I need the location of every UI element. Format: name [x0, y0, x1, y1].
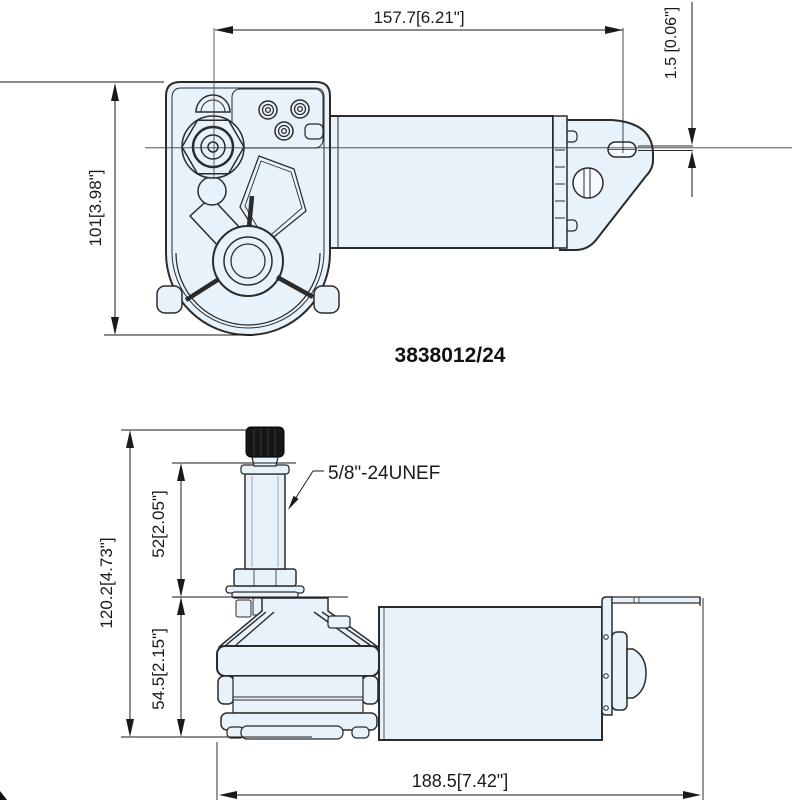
dim-shaft-height-label: 52[2.05"] [149, 490, 168, 557]
park-switch-block [236, 600, 251, 617]
thread-callout: 5/8"-24UNEF [288, 463, 440, 510]
shaft-hex-nut [234, 569, 296, 586]
boss-bottom-bump [198, 177, 226, 205]
gearbox-band [217, 646, 379, 676]
dome-side-block [328, 616, 350, 628]
dim-total-height-label: 120.2[4.73"] [97, 537, 116, 628]
dim-body-height: 54.5[2.15"] [149, 597, 185, 737]
dim-width-label: 157.7[6.21"] [373, 8, 464, 27]
motor-can-side [379, 607, 602, 740]
dim-plate-thickness: 1.5 [0.06"] [663, 2, 696, 197]
drive-shaft-assembly [226, 427, 304, 598]
gearbox-ear-right [362, 676, 378, 704]
thread-label: 5/8"-24UNEF [328, 463, 440, 484]
side-view: 5/8"-24UNEF 120.2[4.73"] 52[2.05"] 54.5[… [97, 427, 703, 800]
dim-plate-thickness-label: 1.5 [0.06"] [663, 7, 680, 79]
gearbox-mid-body [233, 676, 363, 713]
bearing-boss-step [612, 632, 627, 710]
dim-total-length-label: 188.5[7.42"] [412, 771, 508, 791]
part-number: 3838012/24 [395, 344, 506, 367]
bearing-boss-dome [627, 649, 646, 698]
dim-body-height-label: 54.5[2.15"] [149, 628, 168, 710]
dim-height-label: 101[3.98"] [86, 170, 105, 247]
housing-ear-left [157, 286, 182, 313]
bracket-screw-hole [573, 168, 603, 198]
motor-end-cap [553, 116, 567, 248]
technical-drawing-page: 157.7[6.21"] 101[3.98"] 1.5 [0.06"] 3838… [0, 0, 800, 800]
page-corner-mark [0, 791, 7, 800]
shaft-cap-nut [246, 427, 284, 457]
shaft-neck [252, 457, 278, 466]
gearbox-ear-left [218, 676, 234, 704]
front-view: 157.7[6.21"] 101[3.98"] 1.5 [0.06"] 3838… [0, 2, 792, 367]
gearbox-side [217, 598, 379, 739]
connector-tab [305, 124, 323, 139]
wiper-motor-drawing: 157.7[6.21"] 101[3.98"] 1.5 [0.06"] 3838… [0, 0, 800, 800]
gearbox-foot-right [352, 727, 369, 738]
motor-can [330, 116, 553, 248]
housing-ear-right [314, 286, 339, 313]
drive-shaft-boss [182, 116, 244, 178]
threaded-shaft-column [245, 474, 285, 569]
